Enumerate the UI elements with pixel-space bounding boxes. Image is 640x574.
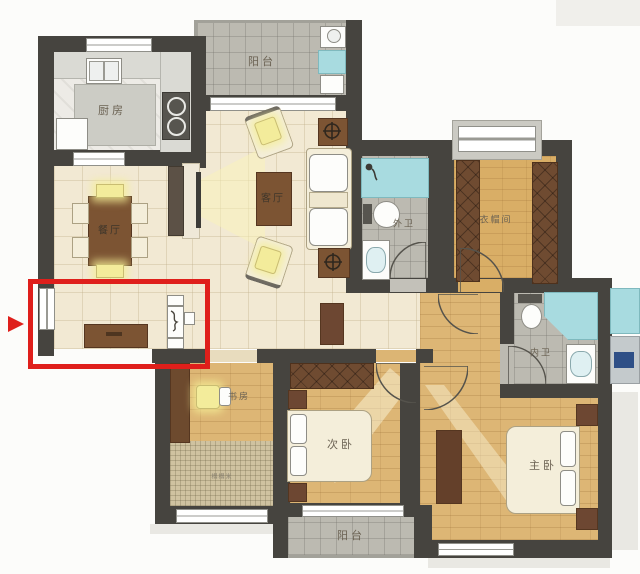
plant-icon-top (322, 121, 342, 141)
master-nightstand-bottom (576, 508, 598, 530)
wall-south-run-c (416, 349, 433, 363)
corridor-cabinet (320, 303, 344, 345)
label-dining: 餐厅 (98, 222, 122, 237)
bath-inner-sink-basin-icon (570, 351, 592, 377)
dining-chair-1 (72, 203, 89, 224)
ac-unit-icon (614, 352, 634, 368)
hallway-cabinet (436, 430, 462, 504)
sofa-seat-bottom (309, 208, 348, 246)
label-study: 书房 (228, 390, 250, 403)
balcony-utility-box-icon (320, 75, 344, 94)
wall-cloak-right (556, 140, 572, 293)
balcony-sink-icon (318, 50, 346, 74)
annotation-red-arrow-icon (6, 312, 26, 336)
kitchen-sliding-door (73, 152, 125, 166)
bedroom-second-wardrobe (290, 363, 374, 389)
kitchen-sink-bowl-icon (89, 61, 104, 81)
sofa-middle-table (309, 192, 348, 208)
ac-platform-top-icon (610, 288, 640, 334)
study-lamp-icon (196, 385, 220, 409)
corridor-floor (192, 293, 420, 349)
label-kitchen: 厨房 (98, 102, 126, 118)
dining-chair-2 (72, 237, 89, 258)
bedroom-second-pillow-2 (290, 446, 307, 476)
tv-screen-icon (196, 172, 201, 228)
bedroom-second-nightstand-top (288, 390, 307, 409)
plant-icon-bottom (323, 252, 343, 272)
wall-bath-inner-bottom (500, 384, 612, 398)
bedroom-second-balcony-window (302, 505, 404, 517)
bath-inner-toilet-tank-icon (518, 294, 542, 303)
stove-burner-2-icon (167, 117, 186, 136)
wall-master-right (598, 398, 612, 558)
bath-outer-door-arc (390, 242, 426, 278)
tv-side-cabinet (168, 166, 184, 236)
bath-inner-toilet-bowl-icon (521, 304, 542, 329)
bedroom-second-nightstand-bottom (288, 483, 307, 502)
wall-bath-cloak-divider (428, 156, 454, 292)
master-bottom-window (438, 543, 514, 556)
label-bedroom-master: 主卧 (529, 457, 557, 473)
cloakroom-door-arc (460, 248, 504, 292)
master-door-arc (424, 366, 468, 410)
cloakroom-wardrobe-right (532, 162, 558, 284)
dining-chair-4 (131, 237, 148, 258)
washing-machine-drum-icon (327, 29, 341, 43)
dining-chair-3 (131, 203, 148, 224)
bedroom-second-pillow-1 (290, 414, 307, 444)
bath-outer-sink-basin-icon (366, 247, 386, 273)
label-living: 客厅 (261, 190, 285, 205)
exterior-band-top-right (556, 0, 640, 26)
annotation-red-box (28, 279, 210, 369)
opening-study-door (205, 350, 257, 362)
opening-bedroom-second-door (376, 350, 416, 362)
label-balcony-top: 阳台 (248, 53, 276, 69)
dining-runner-top (96, 184, 124, 198)
label-bedroom-second: 次卧 (327, 436, 355, 452)
study-desk (170, 363, 190, 443)
bath-outer-showerhead-icon (364, 162, 380, 182)
label-bath-inner: 内卫 (530, 346, 552, 359)
sofa-seat-top (309, 154, 348, 192)
stove-burner-1-icon (167, 97, 186, 116)
fridge-spot-icon (56, 118, 88, 150)
master-pillow-2 (560, 470, 576, 506)
master-nightstand-top (576, 404, 598, 426)
opening-bath-outer-door (390, 279, 426, 292)
dining-runner-bottom (96, 264, 124, 278)
hallway-door-arc (438, 294, 478, 334)
bedroom-second-door-arc (376, 363, 416, 403)
label-cloakroom: 衣帽间 (479, 213, 512, 226)
bath-outer-toilet-tank-icon (363, 204, 372, 224)
label-bath-outer: 外卫 (393, 217, 415, 230)
wall-balcony-bottom-left (273, 500, 288, 558)
exterior-band-bottom-left (150, 524, 290, 534)
exterior-band-right (612, 392, 638, 550)
kitchen-sink-bowl2-icon (104, 61, 119, 81)
master-pillow-1 (560, 431, 576, 467)
label-tatami: 榻榻米 (211, 472, 232, 481)
wall-study-left (155, 349, 170, 524)
cloakroom-bay-window-glass (458, 126, 536, 152)
study-window (176, 509, 268, 523)
kitchen-window (86, 38, 152, 52)
label-balcony-bottom: 阳台 (337, 527, 365, 543)
floor-plan-image: 阳台 厨房 餐厅 客厅 外卫 衣帽间 内卫 书房 次卧 主卧 阳台 榻榻米 (0, 0, 640, 574)
